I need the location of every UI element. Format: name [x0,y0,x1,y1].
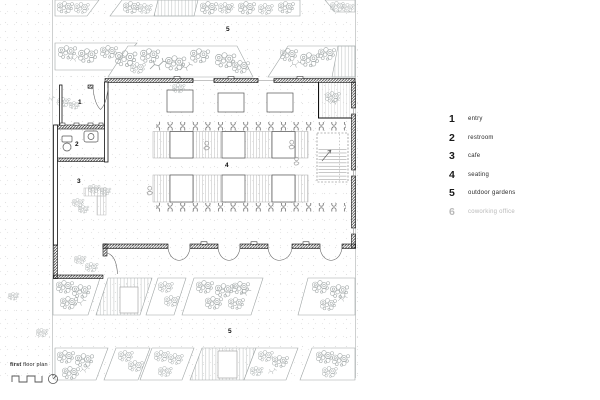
sheet-title-bold: first [10,362,21,368]
floor-plan-sheet: 1 2 3 4 5 5 1 entry 2 restroom 3 cafe 4 … [0,0,600,400]
sheet-title: first floor plan [10,362,62,368]
legend-item-seating: 4 seating [449,166,515,185]
legend-item-coworking-office: 6 coworking office [449,203,515,222]
plan-label-gardens-top: 5 [226,27,230,34]
legend-number: 5 [449,187,465,199]
restroom-fixtures [62,131,98,151]
legend-item-cafe: 3 cafe [449,147,515,166]
garden-beds-top [55,0,355,77]
legend-item-outdoor-gardens: 5 outdoor gardens [449,184,515,203]
top-counters [167,90,293,112]
garden-beds-bottom [53,278,355,380]
plan-label-restroom: 2 [75,142,79,149]
legend-label: seating [468,172,489,178]
north-arrow-icon [48,374,57,383]
legend-number: 2 [449,132,465,144]
toilet-bowl [63,143,71,151]
plan-label-cafe: 3 [77,179,81,186]
plan-label-gardens-bottom: 5 [228,329,232,336]
plan-label-entry: 1 [78,100,82,107]
legend-label: cafe [468,153,480,159]
legend-item-entry: 1 entry [449,110,515,129]
legend-label: coworking office [468,209,515,215]
terrace-door [107,253,118,274]
legend-number: 6 [449,206,465,218]
toilet-tank [62,136,72,142]
legend-number: 3 [449,150,465,162]
stool-row-bottom [156,203,346,212]
stairs [317,133,348,182]
corner-room [319,82,352,118]
title-block: first floor plan [10,362,62,390]
legend: 1 entry 2 restroom 3 cafe 4 seating 5 ou… [449,110,515,221]
legend-label: entry [468,116,483,122]
legend-item-restroom: 2 restroom [449,129,515,148]
legend-label: restroom [468,135,494,141]
sheet-title-rest: floor plan [21,362,47,368]
scale-bar-icon [12,376,42,382]
plan-label-seating: 4 [225,163,229,170]
legend-number: 1 [449,113,465,125]
legend-number: 4 [449,169,465,181]
stool-row-top [156,122,346,131]
legend-label: outdoor gardens [468,190,515,196]
